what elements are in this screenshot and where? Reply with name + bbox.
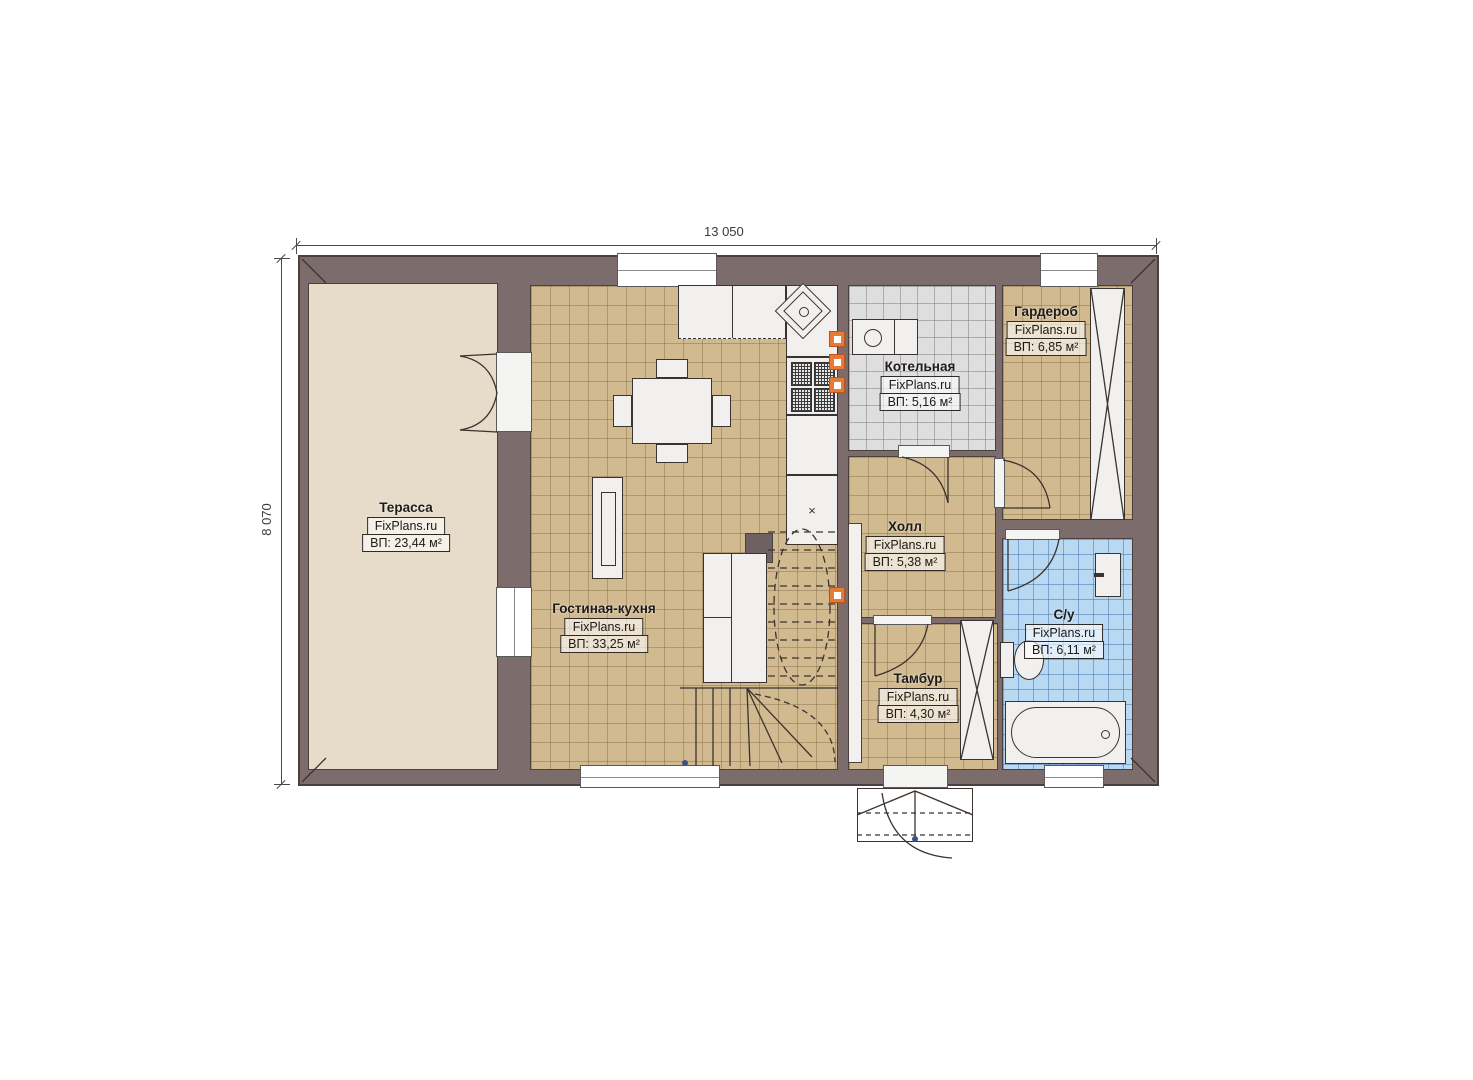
dimension-width-label: 13 050: [704, 224, 744, 239]
room-label-living-kitchen: Гостиная-кухня FixPlans.ru ВП: 33,25 м²: [552, 601, 655, 653]
room-brand: FixPlans.ru: [881, 376, 960, 394]
bathroom-door: [1008, 539, 1059, 591]
room-area: ВП: 33,25 м²: [560, 635, 648, 653]
vent-marker: [829, 377, 845, 393]
room-area: ВП: 4,30 м²: [878, 705, 959, 723]
vestibule-door: [875, 624, 928, 676]
room-brand: FixPlans.ru: [367, 517, 446, 535]
room-brand: FixPlans.ru: [1007, 321, 1086, 339]
room-name: Гардероб: [1014, 304, 1078, 319]
terrace-double-door: [460, 354, 497, 432]
porch-steps: [857, 791, 973, 842]
wardrobe-door: [1003, 460, 1050, 508]
room-label-terrace: Терасса FixPlans.ru ВП: 23,44 м²: [362, 500, 450, 552]
room-area: ВП: 6,11 м²: [1024, 641, 1104, 659]
vent-marker: [829, 587, 845, 603]
room-label-hall: Холл FixPlans.ru ВП: 5,38 м²: [865, 519, 946, 571]
room-name: С/у: [1053, 607, 1074, 622]
room-name: Терасса: [379, 500, 433, 515]
boiler-door: [902, 457, 948, 503]
room-name: Тамбур: [894, 671, 943, 686]
dimension-height-label: 8 070: [259, 503, 274, 536]
room-name: Холл: [888, 519, 922, 534]
room-label-wardrobe: Гардероб FixPlans.ru ВП: 6,85 м²: [1006, 304, 1087, 356]
room-label-boiler: Котельная FixPlans.ru ВП: 5,16 м²: [880, 359, 961, 411]
vent-marker: [829, 354, 845, 370]
dimension-height-line: [281, 258, 282, 784]
room-name: Котельная: [885, 359, 956, 374]
vent-marker: [829, 331, 845, 347]
room-brand: FixPlans.ru: [879, 688, 958, 706]
stairs-lower: [680, 688, 838, 766]
room-label-bathroom: С/у FixPlans.ru ВП: 6,11 м²: [1024, 607, 1104, 659]
room-brand: FixPlans.ru: [565, 618, 644, 636]
room-area: ВП: 5,16 м²: [880, 393, 961, 411]
floor-plan-page: 13 050 8 070: [0, 0, 1473, 1080]
room-area: ВП: 5,38 м²: [865, 553, 946, 571]
wardrobe-cabinet-x: [1091, 289, 1124, 519]
vestibule-cabinet-x: [961, 621, 993, 759]
room-brand: FixPlans.ru: [1025, 624, 1104, 642]
entrance-door: [882, 793, 952, 858]
room-brand: FixPlans.ru: [866, 536, 945, 554]
dimension-width-line: [296, 245, 1157, 246]
room-label-vestibule: Тамбур FixPlans.ru ВП: 4,30 м²: [878, 671, 959, 723]
stairs-upper: [768, 529, 836, 685]
room-area: ВП: 6,85 м²: [1006, 338, 1087, 356]
room-name: Гостиная-кухня: [552, 601, 655, 616]
room-area: ВП: 23,44 м²: [362, 534, 450, 552]
